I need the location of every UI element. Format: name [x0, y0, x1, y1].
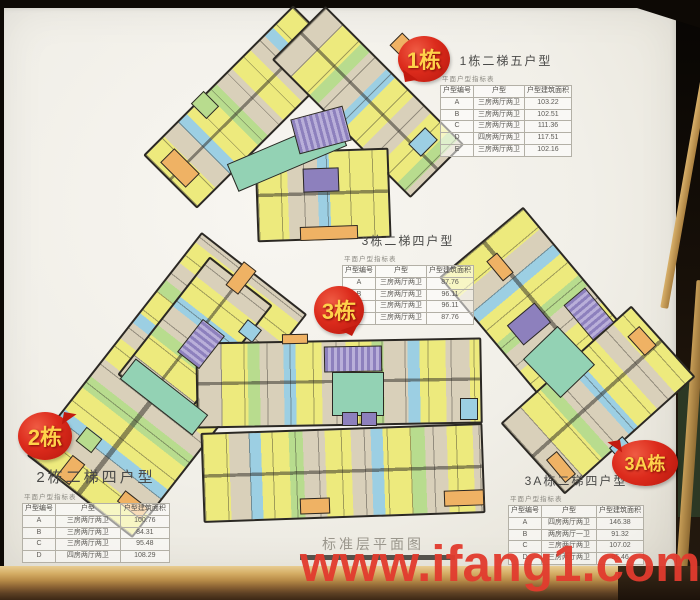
building-3-stair-core — [324, 345, 382, 372]
badge-building-3-label: 3栋 — [322, 294, 356, 326]
badge-building-2: 2栋 — [18, 412, 72, 460]
badge-building-3a: 3A栋 — [612, 440, 678, 486]
building-3-bottom-row — [201, 423, 486, 523]
table-title-building-1: 1栋二梯五户型 — [440, 52, 572, 69]
table-caption-building-3: 平面户型指标表 — [344, 253, 474, 263]
badge-building-3: 3栋 — [314, 286, 364, 334]
building-1-elevator-core — [303, 167, 340, 192]
building-3-balcony-1 — [300, 497, 331, 514]
table-caption-building-1: 平面户型指标表 — [442, 73, 572, 83]
badge-building-1-label: 1栋 — [407, 43, 441, 75]
unit-table-building-2: 2栋二梯四户型 平面户型指标表 户型编号户型户型建筑面积A三房两厅两卫100.7… — [22, 466, 170, 563]
table-title-building-2: 2栋二梯四户型 — [22, 466, 170, 487]
unit-area-table-building-2: 户型编号户型户型建筑面积A三房两厅两卫100.76B三房两厅两卫84.31C三房… — [22, 503, 170, 563]
building-3-elevator-1 — [342, 412, 358, 426]
building-3-lobby — [332, 372, 384, 416]
badge-building-1: 1栋 — [398, 36, 450, 82]
unit-table-building-1: 1栋二梯五户型 平面户型指标表 户型编号户型户型建筑面积A三房两厅两卫103.2… — [440, 52, 572, 157]
table-caption-building-3a: 平面户型指标表 — [510, 493, 644, 503]
building-3-bath-unit — [460, 398, 478, 420]
photo-of-floorplan-board: 1栋 3栋 2栋 3A栋 1栋二梯五户型 平面户型指标表 户型编号户型户型建筑面… — [0, 0, 700, 600]
watermark: www.ifang1.com — [300, 538, 700, 589]
building-3-balcony-3 — [282, 334, 308, 344]
badge-building-2-label: 2栋 — [28, 420, 62, 452]
building-3-balcony-2 — [444, 489, 485, 506]
unit-area-table-building-1: 户型编号户型户型建筑面积A三房两厅两卫103.22B三房两厅两卫102.51C三… — [440, 85, 572, 157]
building-3-elevator-2 — [361, 412, 377, 426]
badge-building-3a-label: 3A栋 — [624, 450, 665, 476]
table-title-building-3: 3栋二梯四户型 — [342, 232, 474, 249]
table-caption-building-2: 平面户型指标表 — [24, 491, 170, 501]
